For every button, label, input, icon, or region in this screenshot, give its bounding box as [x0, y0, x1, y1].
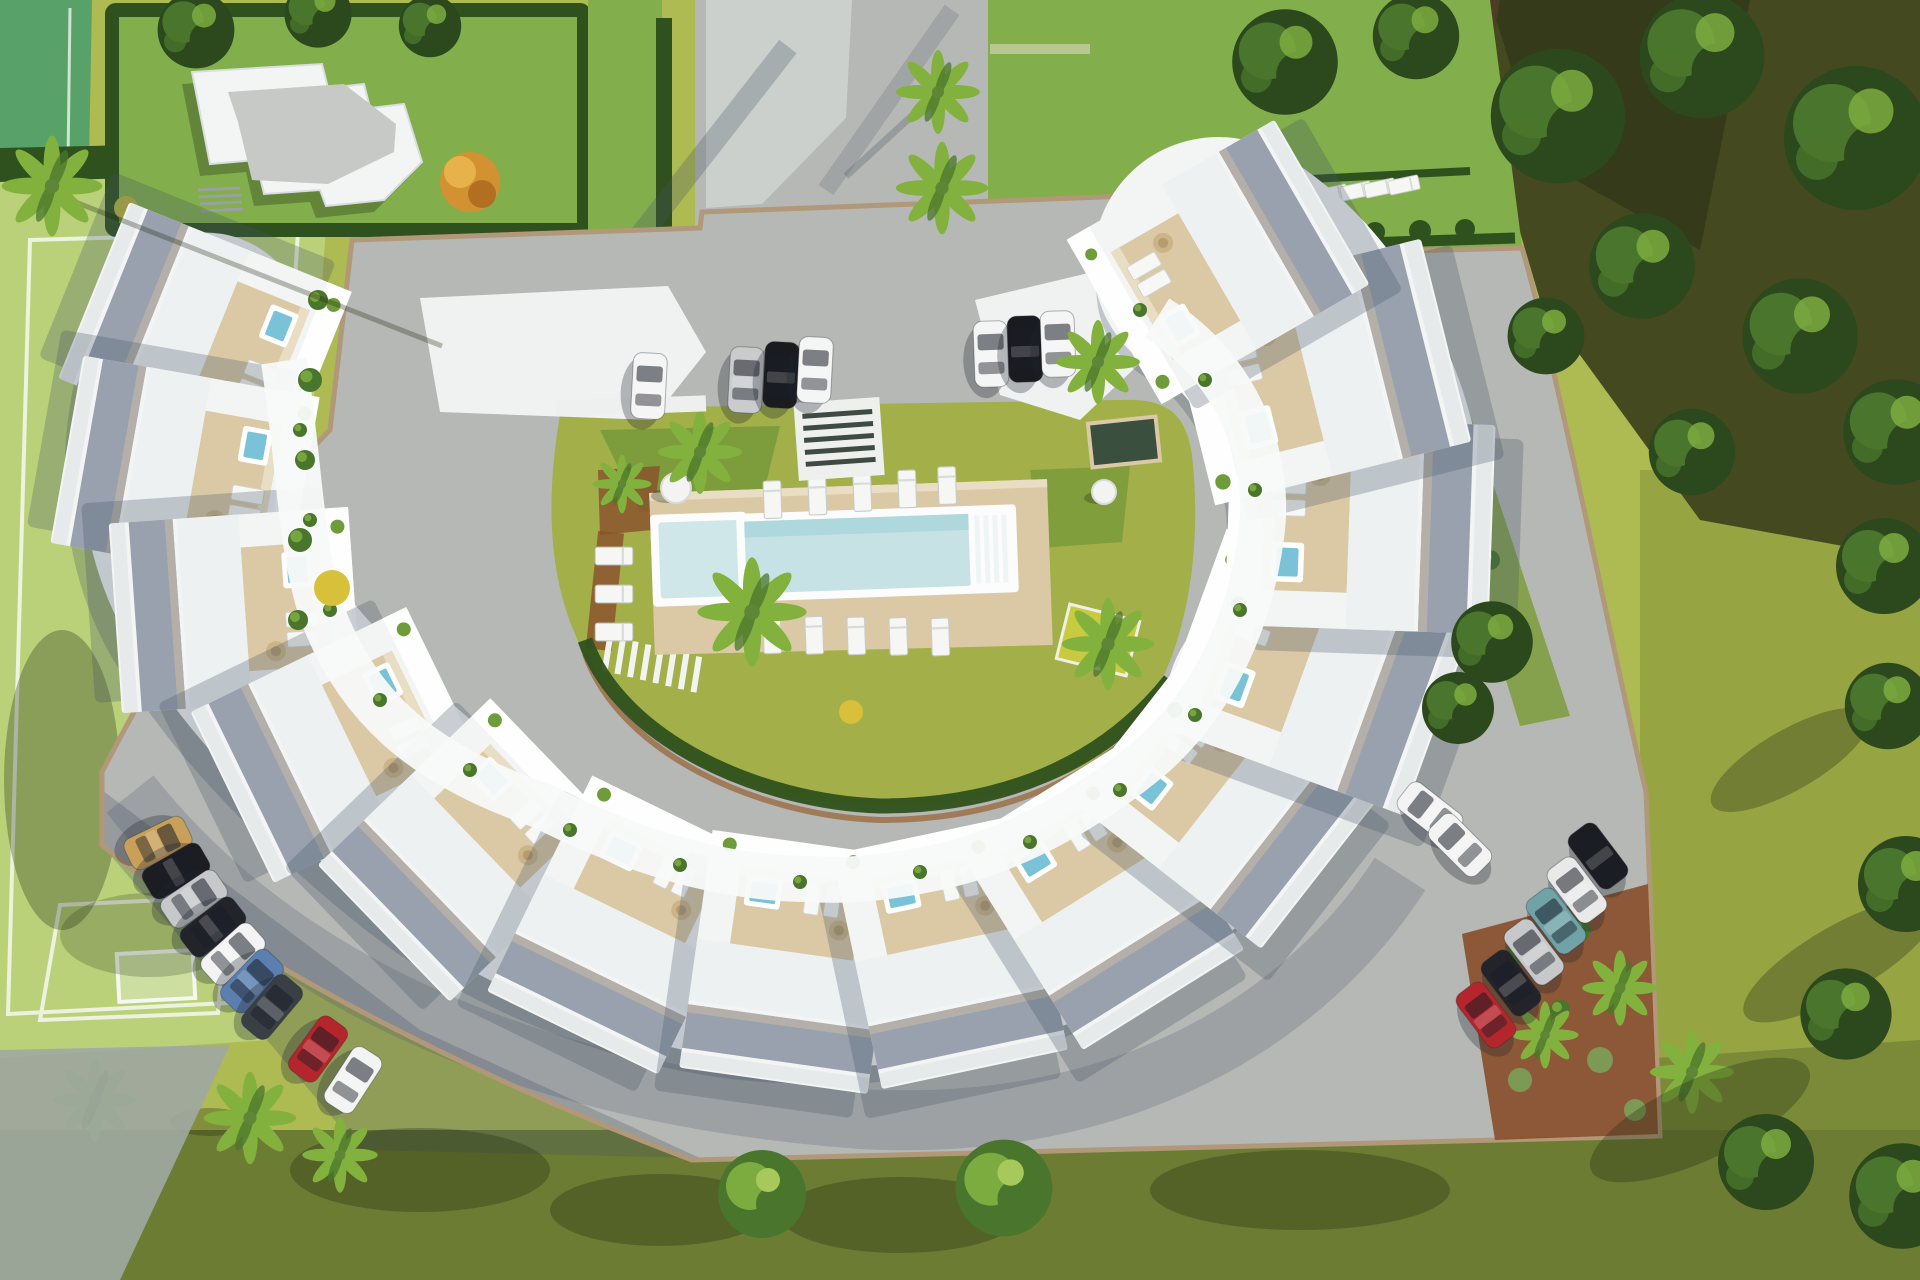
palm-tree — [697, 557, 806, 666]
aerial-site-plan — [0, 0, 1920, 1280]
villa-garden — [112, 0, 584, 230]
lawn-loungers — [595, 547, 632, 641]
yellow-tree — [839, 700, 863, 724]
orange-tree — [440, 152, 500, 212]
garden-path — [990, 44, 1090, 54]
pool-deck — [649, 463, 1053, 665]
site-plan-render — [0, 0, 1920, 1280]
palm-tree — [1582, 950, 1658, 1026]
road-side-lawn — [588, 0, 662, 236]
yellow-tree — [314, 570, 350, 606]
palm-tree — [1062, 598, 1154, 690]
palm-tree — [658, 410, 742, 494]
pergola — [1088, 417, 1160, 468]
palm-tree — [593, 455, 652, 514]
